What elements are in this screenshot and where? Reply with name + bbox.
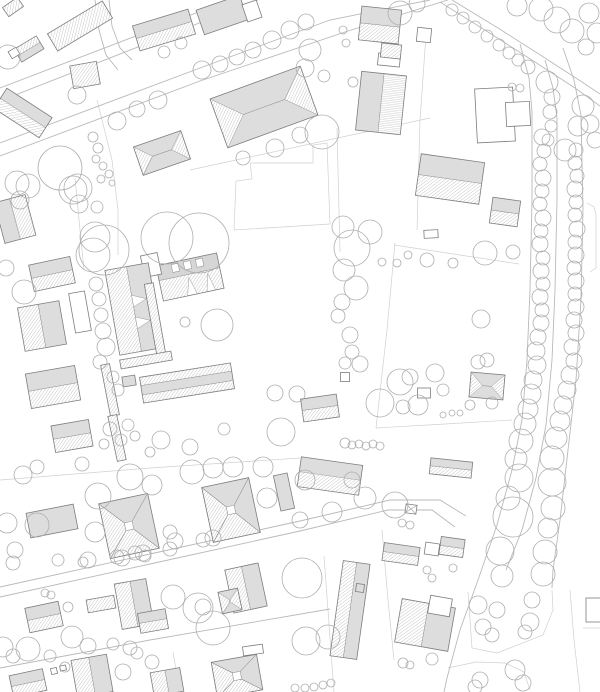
tree-icon (342, 39, 350, 47)
building-shape (140, 363, 235, 403)
building-shape (356, 71, 407, 134)
parcel-line (376, 243, 395, 428)
tree-icon (587, 132, 600, 148)
tree-icon (299, 39, 321, 61)
tree-icon (505, 660, 525, 680)
tree-icon (7, 542, 23, 558)
tree-icon (471, 355, 485, 369)
map-canvas (0, 0, 600, 692)
building-shape (150, 668, 184, 692)
building-shape (86, 595, 116, 613)
tree-icon (475, 619, 491, 635)
tree-icon (218, 423, 230, 435)
tree-icon (543, 105, 557, 119)
tree-icon (123, 641, 137, 655)
building-shape (218, 588, 242, 614)
building-shape (382, 543, 420, 566)
tree-icon (196, 533, 210, 547)
parcel-line (587, 203, 596, 272)
parcel-line (417, 35, 426, 230)
tree-icon (257, 488, 277, 508)
tree-icon (149, 91, 167, 109)
tree-icon (88, 132, 98, 142)
building-shape (26, 504, 78, 538)
parcel-line (570, 590, 580, 692)
tree-icon (334, 294, 350, 310)
tree-icon (14, 466, 32, 484)
tree-icon (266, 139, 284, 157)
tree-icon (540, 446, 564, 470)
tree-icon (89, 277, 103, 291)
tree-icon (382, 492, 408, 518)
tree-icon (161, 585, 185, 609)
tree-icon (465, 400, 475, 410)
tree-icon (99, 439, 109, 449)
parcel-line (376, 420, 512, 428)
tree-icon (97, 175, 105, 183)
tree-icon (533, 197, 547, 211)
tree-icon (524, 371, 542, 389)
tree-icon (533, 263, 549, 279)
tree-icon (440, 412, 446, 418)
tree-icon (531, 562, 555, 586)
tree-icon (267, 418, 295, 446)
tree-icon (253, 457, 273, 477)
tree-icon (195, 599, 211, 615)
tree-icon (491, 565, 513, 587)
tree-icon (332, 216, 354, 238)
tree-icon (352, 356, 368, 372)
tree-icon (567, 181, 583, 197)
building-shape (50, 667, 57, 674)
tree-icon (203, 458, 223, 478)
tree-icon (342, 327, 358, 343)
tree-icon (524, 592, 540, 608)
tree-icon (292, 627, 320, 655)
tree-icon (142, 475, 162, 495)
tree-icon (469, 596, 487, 614)
building-shape (355, 583, 364, 592)
building-shape (2, 0, 23, 17)
tree-icon (472, 310, 490, 328)
tree-icon (537, 144, 551, 158)
tree-icon (516, 84, 524, 92)
tree-icon (534, 129, 550, 145)
building-shape (133, 131, 190, 176)
parcel-line (448, 662, 530, 690)
tree-icon (68, 86, 86, 104)
tree-icon (180, 460, 204, 484)
tree-icon (212, 56, 228, 72)
tree-icon (245, 42, 261, 58)
tree-icon (327, 679, 335, 687)
building-shape (330, 561, 370, 660)
tree-icon (393, 259, 401, 267)
tree-icon (448, 258, 458, 268)
tree-icon (334, 230, 370, 266)
building-shape (415, 154, 484, 204)
building-shape (122, 375, 136, 387)
tree-icon (183, 593, 213, 623)
tree-icon (105, 170, 113, 178)
tree-icon (493, 39, 505, 51)
tree-icon (406, 521, 414, 529)
building-shape (428, 595, 453, 617)
tree-icon (236, 151, 250, 165)
building-shape (418, 388, 431, 398)
tree-icon (12, 280, 36, 304)
building-shape (0, 195, 36, 244)
building-shape (505, 101, 530, 126)
tree-icon (544, 7, 570, 33)
tree-icon (518, 399, 538, 419)
tree-icon (91, 201, 103, 213)
tree-icon (94, 308, 108, 322)
tree-icon (579, 3, 599, 23)
tree-icon (289, 386, 305, 402)
tree-icon (538, 518, 558, 538)
tree-icon (180, 317, 190, 327)
tree-icon (129, 101, 145, 117)
tree-icon (16, 637, 40, 661)
tree-icon (61, 626, 83, 648)
tree-icon (318, 70, 330, 82)
tree-icon (426, 364, 444, 382)
building-shape (137, 609, 168, 634)
tree-icon (99, 162, 107, 170)
building-shape (0, 88, 52, 138)
tree-icon (538, 468, 566, 496)
tree-icon (485, 628, 499, 642)
tree-icon (310, 683, 318, 691)
building-shape (51, 419, 93, 452)
building-shape (202, 478, 261, 543)
tree-icon (518, 625, 532, 639)
building-shape (211, 654, 263, 692)
tree-icon (141, 212, 193, 264)
tree-icon (30, 460, 44, 474)
site-plan-map[interactable] (0, 0, 600, 692)
tree-icon (95, 323, 111, 339)
tree-icon (533, 157, 547, 171)
building-shape (196, 0, 248, 35)
tree-icon (428, 574, 436, 582)
tree-icon (145, 447, 155, 457)
building-shape (358, 6, 401, 44)
tree-icon (420, 253, 434, 267)
tree-icon (532, 236, 548, 252)
tree-icon (568, 116, 588, 136)
tree-icon (457, 12, 469, 24)
tree-icon (107, 638, 119, 650)
tree-icon (201, 309, 233, 341)
tree-icon (535, 170, 551, 186)
building-shape (429, 458, 472, 478)
tree-icon (564, 339, 580, 355)
tree-icon (301, 684, 309, 692)
tree-icon (404, 251, 412, 259)
tree-icon (92, 292, 106, 306)
tree-icon (63, 602, 73, 612)
building-shape (71, 654, 113, 692)
parcel-line (337, 128, 340, 252)
building-shape (9, 669, 47, 692)
tree-icon (196, 611, 230, 645)
tree-icon (331, 309, 345, 323)
tree-icon (426, 653, 438, 665)
building-shape (70, 61, 101, 88)
tree-icon (298, 14, 314, 30)
tree-icon (0, 260, 14, 276)
tree-icon (130, 431, 140, 441)
tree-icon (44, 650, 56, 662)
tree-icon (108, 112, 126, 130)
building-shape (25, 365, 80, 408)
building-shape (156, 253, 224, 301)
tree-icon (358, 220, 382, 244)
building-shape (416, 27, 431, 42)
tree-icon (480, 353, 494, 367)
tree-icon (568, 156, 582, 170)
building-shape (242, 644, 263, 656)
building-shape (17, 301, 66, 352)
building-shape (301, 394, 340, 422)
building-shape (341, 373, 350, 382)
building-shape (424, 542, 440, 556)
tree-icon (512, 54, 524, 66)
tree-icon (402, 369, 418, 385)
building-shape (380, 43, 401, 59)
tree-icon (533, 540, 557, 564)
tree-icon (578, 39, 594, 55)
tree-icon (503, 47, 515, 59)
tree-icon (533, 315, 549, 331)
tree-icon (581, 115, 599, 133)
building-shape (469, 372, 505, 400)
tree-icon (568, 208, 582, 222)
building-shape (69, 291, 92, 333)
tree-icon (291, 684, 299, 692)
tree-icon (263, 31, 281, 49)
tree-icon (115, 664, 131, 680)
tree-icon (515, 675, 531, 691)
tree-icon (282, 558, 322, 598)
building-shape (439, 536, 465, 557)
building-shape (405, 504, 417, 514)
tree-icon (398, 519, 406, 527)
tree-icon (76, 238, 110, 272)
building-shape (273, 473, 294, 511)
tree-icon (117, 464, 143, 490)
building-shape (60, 665, 67, 671)
tree-icon (521, 60, 535, 74)
building-shape (586, 598, 600, 622)
tree-icon (423, 566, 431, 574)
tree-icon (387, 369, 413, 395)
building-shape (132, 9, 195, 51)
tree-icon (572, 95, 594, 117)
tree-icon (97, 338, 115, 356)
tree-icon (78, 557, 88, 567)
tree-icon (473, 241, 497, 265)
tree-icon (158, 46, 170, 58)
building-shape (424, 230, 438, 239)
tree-icon (267, 385, 283, 401)
tree-icon (319, 681, 327, 689)
tree-icon (529, 0, 553, 21)
tree-icon (348, 77, 358, 87)
tree-icon (145, 655, 159, 669)
tree-icon (376, 442, 384, 450)
parcel-line (324, 556, 334, 692)
tree-icon (281, 21, 299, 39)
tree-icon (152, 431, 170, 449)
tree-icon (339, 357, 351, 369)
building-shape (210, 66, 318, 148)
building-shape (14, 36, 44, 62)
tree-icon (0, 45, 20, 69)
tree-icon (505, 464, 533, 492)
tree-icon (489, 602, 505, 618)
tree-icon (437, 384, 449, 396)
tree-icon (85, 522, 105, 542)
tree-icon (109, 180, 115, 186)
buildings-layer (0, 0, 600, 692)
tree-icon (93, 143, 103, 153)
tree-icon (449, 410, 455, 416)
tree-icon (163, 525, 177, 539)
tree-icon (457, 410, 463, 416)
tree-icon (0, 513, 17, 533)
tree-icon (532, 289, 548, 305)
building-shape (25, 601, 63, 633)
tree-icon (506, 245, 520, 259)
tree-icon (223, 457, 243, 477)
tree-icon (587, 23, 600, 43)
tree-icon (122, 419, 134, 431)
tree-icon (52, 554, 64, 566)
tree-icon (378, 258, 386, 266)
building-shape (489, 197, 520, 227)
tree-icon (449, 564, 457, 572)
parcel-line (234, 143, 330, 230)
tree-icon (182, 439, 198, 455)
parcel-line (394, 245, 519, 264)
tree-icon (38, 146, 82, 190)
tree-icon (75, 457, 89, 471)
tree-icon (229, 49, 245, 65)
tree-icon (93, 355, 107, 369)
tree-icon (521, 613, 539, 631)
building-shape (29, 256, 76, 291)
tree-icon (514, 413, 536, 435)
tree-icon (486, 537, 514, 565)
tree-icon (85, 483, 111, 509)
tree-icon (507, 0, 527, 16)
tree-icon (333, 259, 355, 281)
tree-icon (92, 155, 100, 163)
tree-icon (535, 210, 551, 226)
tree-icon (167, 533, 183, 549)
